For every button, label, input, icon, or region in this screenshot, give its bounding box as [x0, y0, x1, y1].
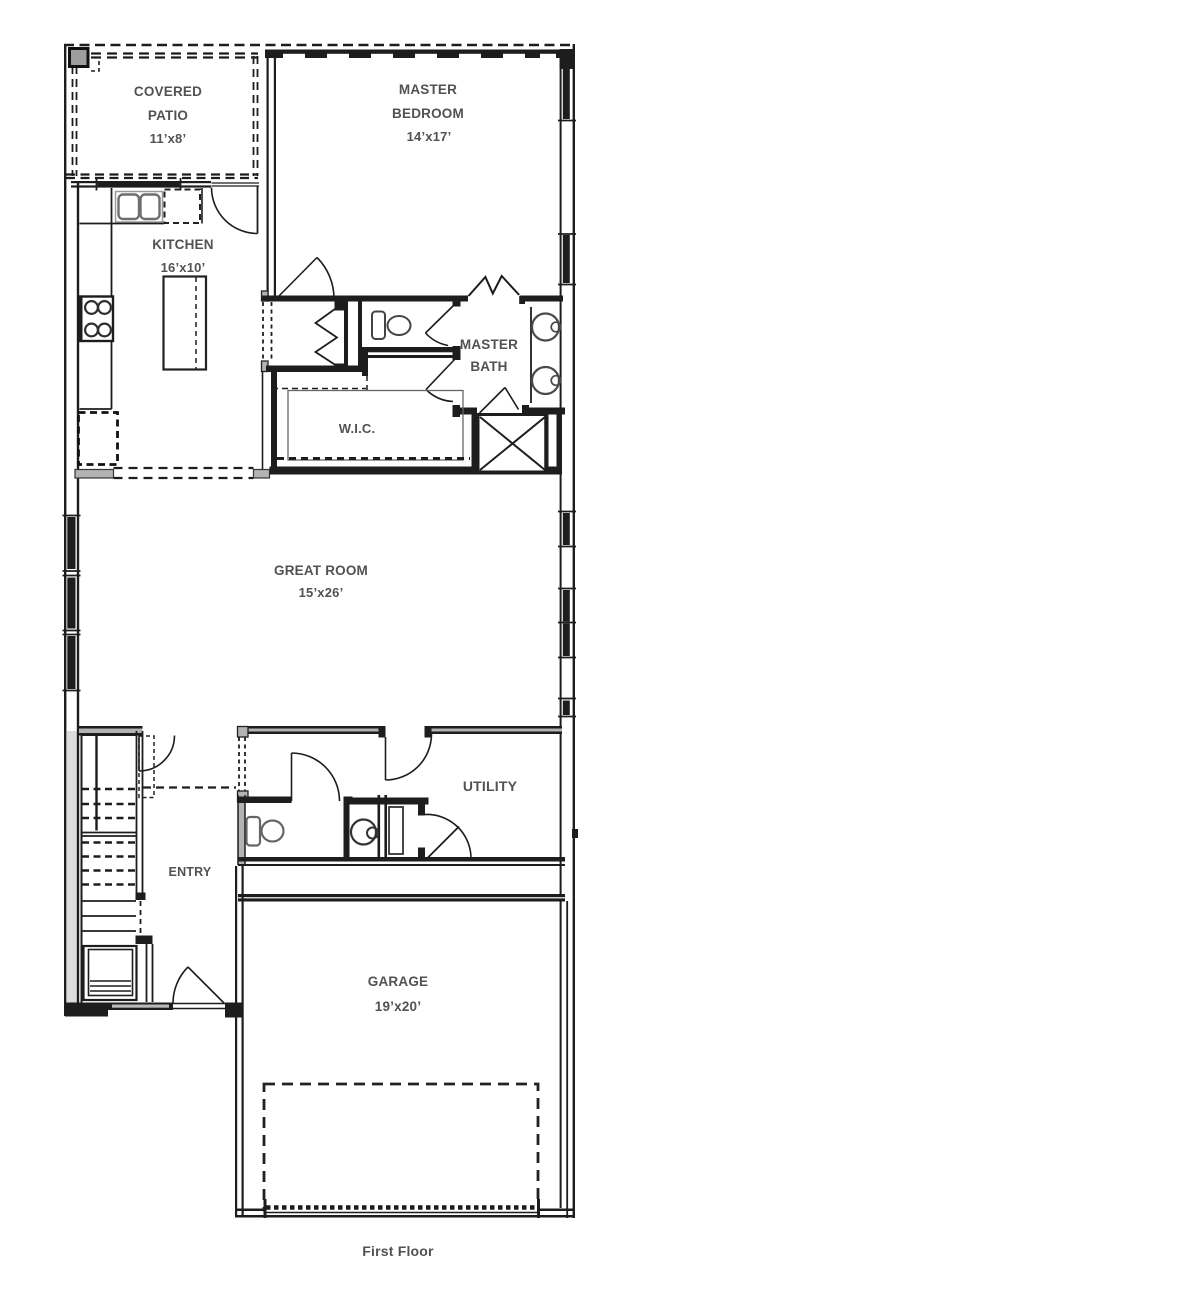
svg-text:UTILITY: UTILITY	[463, 778, 518, 794]
svg-text:PATIO: PATIO	[148, 108, 188, 123]
svg-text:BATH: BATH	[470, 359, 507, 374]
svg-text:COVERED: COVERED	[134, 84, 202, 99]
svg-text:W.I.C.: W.I.C.	[339, 421, 376, 436]
svg-text:MASTER: MASTER	[399, 82, 457, 97]
svg-text:First Floor: First Floor	[362, 1243, 434, 1259]
svg-text:ENTRY: ENTRY	[169, 865, 212, 879]
svg-text:MASTER: MASTER	[460, 337, 518, 352]
svg-text:16’x10’: 16’x10’	[161, 260, 206, 275]
svg-text:15’x26’: 15’x26’	[299, 585, 344, 600]
svg-text:GARAGE: GARAGE	[368, 974, 428, 989]
svg-text:19’x20’: 19’x20’	[375, 999, 421, 1014]
svg-text:KITCHEN: KITCHEN	[152, 237, 213, 252]
svg-text:14’x17’: 14’x17’	[407, 129, 452, 144]
svg-text:11’x8’: 11’x8’	[150, 131, 187, 146]
svg-text:GREAT ROOM: GREAT ROOM	[274, 563, 368, 578]
svg-text:BEDROOM: BEDROOM	[392, 106, 464, 121]
